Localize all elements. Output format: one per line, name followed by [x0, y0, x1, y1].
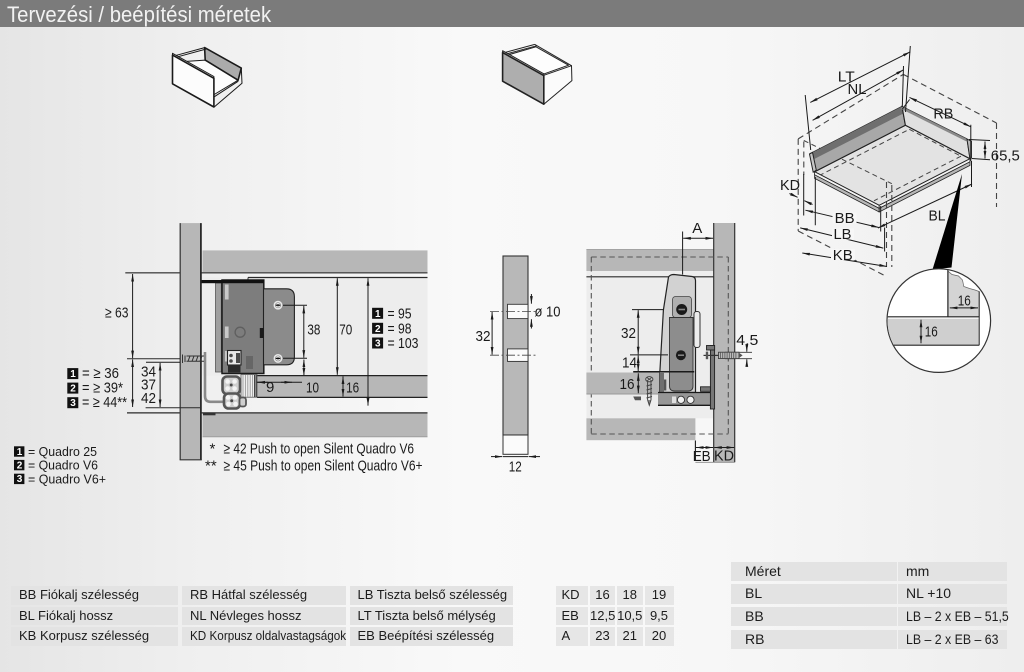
- svg-text:KD: KD: [780, 177, 800, 194]
- svg-text:= Quadro V6: = Quadro V6: [28, 458, 98, 473]
- svg-text:4,5: 4,5: [736, 332, 758, 349]
- svg-text:10: 10: [306, 379, 319, 396]
- svg-text:≥ 45 Push to open Silent Quadr: ≥ 45 Push to open Silent Quadro V6+: [224, 457, 423, 474]
- svg-text:KD: KD: [714, 448, 734, 465]
- svg-text:70: 70: [339, 321, 352, 338]
- svg-text:BB: BB: [835, 210, 855, 227]
- svg-text:BL: BL: [929, 208, 946, 225]
- svg-text:**: **: [205, 457, 217, 474]
- svg-text:3: 3: [375, 339, 381, 350]
- svg-text:12: 12: [509, 459, 522, 476]
- svg-text:≥ 42 Push to open Silent Quadr: ≥ 42 Push to open Silent Quadro V6: [224, 441, 415, 458]
- svg-text:*: *: [210, 441, 216, 458]
- svg-text:LB: LB: [834, 226, 852, 243]
- svg-text:= 103: = 103: [388, 335, 419, 352]
- svg-text:42: 42: [141, 390, 156, 407]
- svg-text:16: 16: [925, 324, 938, 341]
- svg-text:16: 16: [620, 376, 635, 393]
- svg-text:3: 3: [17, 474, 23, 485]
- svg-text:= Quadro V6+: = Quadro V6+: [28, 471, 106, 486]
- svg-text:3: 3: [70, 398, 76, 409]
- svg-text:2: 2: [17, 460, 23, 471]
- svg-text:1: 1: [70, 369, 76, 380]
- svg-text:2: 2: [375, 324, 381, 335]
- svg-text:RB: RB: [933, 105, 953, 122]
- svg-text:32: 32: [621, 325, 636, 342]
- svg-text:2: 2: [70, 384, 76, 395]
- svg-text:9: 9: [266, 379, 274, 396]
- svg-text:ø 10: ø 10: [535, 304, 561, 321]
- svg-text:≥ 63: ≥ 63: [105, 304, 129, 321]
- svg-text:1: 1: [17, 447, 23, 458]
- svg-text:14: 14: [622, 355, 637, 372]
- svg-text:KB: KB: [833, 247, 853, 264]
- svg-text:= ≥ 44**: = ≥ 44**: [82, 394, 127, 411]
- svg-text:16: 16: [958, 292, 971, 309]
- svg-text:38: 38: [307, 322, 320, 339]
- svg-text:NL: NL: [848, 81, 867, 98]
- svg-text:A: A: [692, 220, 702, 237]
- svg-text:65,5: 65,5: [991, 148, 1020, 165]
- svg-text:16: 16: [346, 379, 359, 396]
- svg-text:1: 1: [375, 309, 381, 320]
- svg-text:32: 32: [476, 328, 491, 345]
- svg-text:EB: EB: [693, 448, 711, 465]
